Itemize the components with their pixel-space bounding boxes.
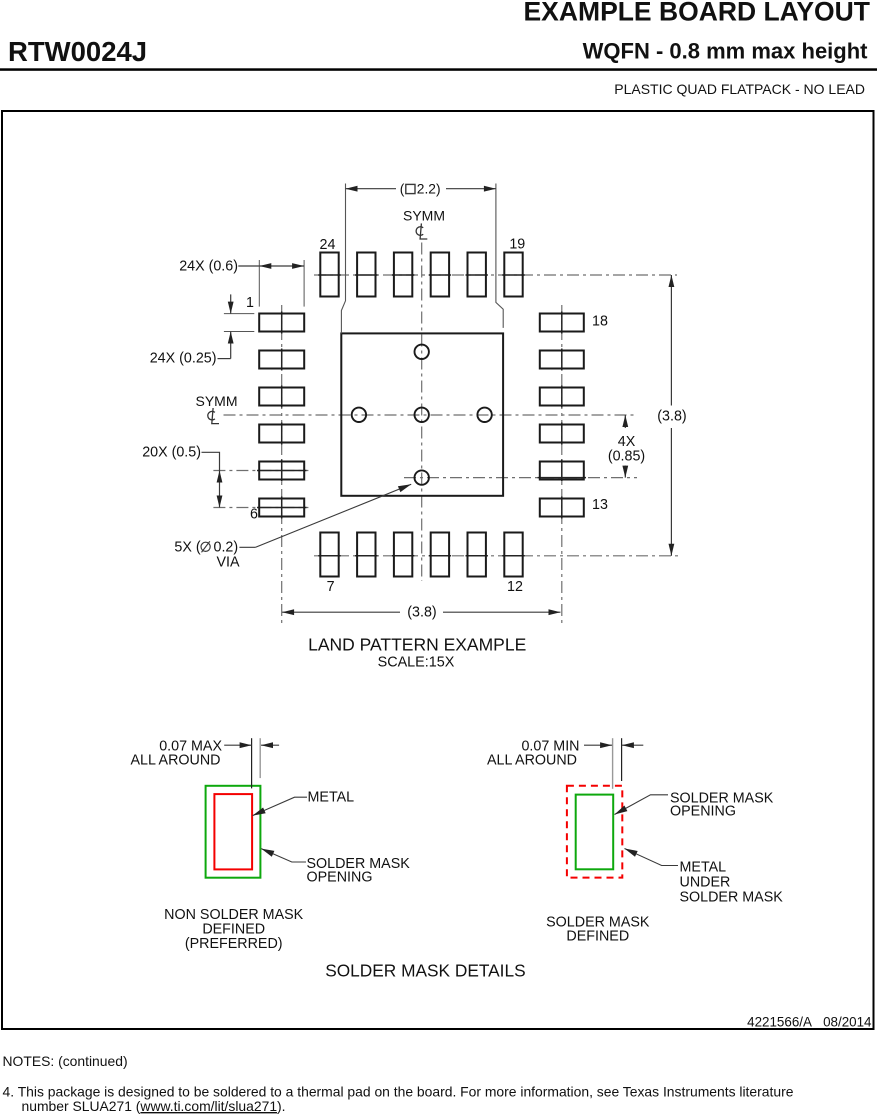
svg-text:0.2): 0.2) [214,539,239,555]
svg-text:18: 18 [592,314,608,330]
svg-text:12: 12 [507,579,523,595]
svg-text:4221566/A 08/2014: 4221566/A 08/2014 [747,1015,872,1030]
svg-text:SYMM: SYMM [196,393,238,409]
svg-text:number SLUA271 (www.ti.com/lit: number SLUA271 (www.ti.com/lit/slua271). [22,1098,286,1114]
svg-text:PLASTIC QUAD FLATPACK - NO LEA: PLASTIC QUAD FLATPACK - NO LEAD [614,81,865,97]
svg-text:4. This package is designed to: 4. This package is designed to be solder… [3,1083,794,1099]
svg-text:19: 19 [509,237,525,253]
svg-text:METAL: METAL [680,860,727,876]
svg-text:(: ( [400,182,405,197]
svg-text:SYMM: SYMM [403,208,445,224]
svg-text:(0.85): (0.85) [608,449,645,465]
svg-text:DEFINED: DEFINED [202,921,265,937]
svg-text:NOTES: (continued): NOTES: (continued) [3,1053,128,1069]
svg-text:2.2): 2.2) [417,182,441,197]
svg-text:(3.8): (3.8) [407,605,436,621]
svg-text:RTW0024J: RTW0024J [8,36,147,67]
svg-text:1: 1 [246,295,254,311]
svg-text:(3.8): (3.8) [657,408,686,424]
svg-text:VIA: VIA [217,555,241,571]
svg-text:EXAMPLE BOARD LAYOUT: EXAMPLE BOARD LAYOUT [524,0,871,26]
svg-text:OPENING: OPENING [307,869,373,885]
svg-text:24: 24 [320,237,336,253]
svg-text:OPENING: OPENING [670,804,736,820]
svg-text:SCALE:15X: SCALE:15X [378,655,455,671]
svg-text:24X (0.25): 24X (0.25) [150,350,217,366]
svg-text:6: 6 [250,507,258,523]
svg-text:7: 7 [327,579,335,595]
svg-text:SOLDER MASK: SOLDER MASK [680,890,784,906]
svg-text:SOLDER MASK DETAILS: SOLDER MASK DETAILS [325,961,525,981]
svg-text:13: 13 [592,497,608,513]
svg-text:ALL AROUND: ALL AROUND [130,752,220,768]
svg-text:5X (: 5X ( [174,539,200,555]
svg-text:WQFN - 0.8 mm max height: WQFN - 0.8 mm max height [583,39,868,64]
svg-text:METAL: METAL [308,789,355,805]
svg-text:24X (0.6): 24X (0.6) [179,258,238,274]
svg-text:DEFINED: DEFINED [566,929,629,945]
svg-text:UNDER: UNDER [680,874,731,890]
svg-text:ALL AROUND: ALL AROUND [487,752,577,768]
svg-text:20X (0.5): 20X (0.5) [142,445,201,461]
svg-text:LAND PATTERN EXAMPLE: LAND PATTERN EXAMPLE [308,634,526,654]
svg-text:(PREFERRED): (PREFERRED) [185,936,283,952]
